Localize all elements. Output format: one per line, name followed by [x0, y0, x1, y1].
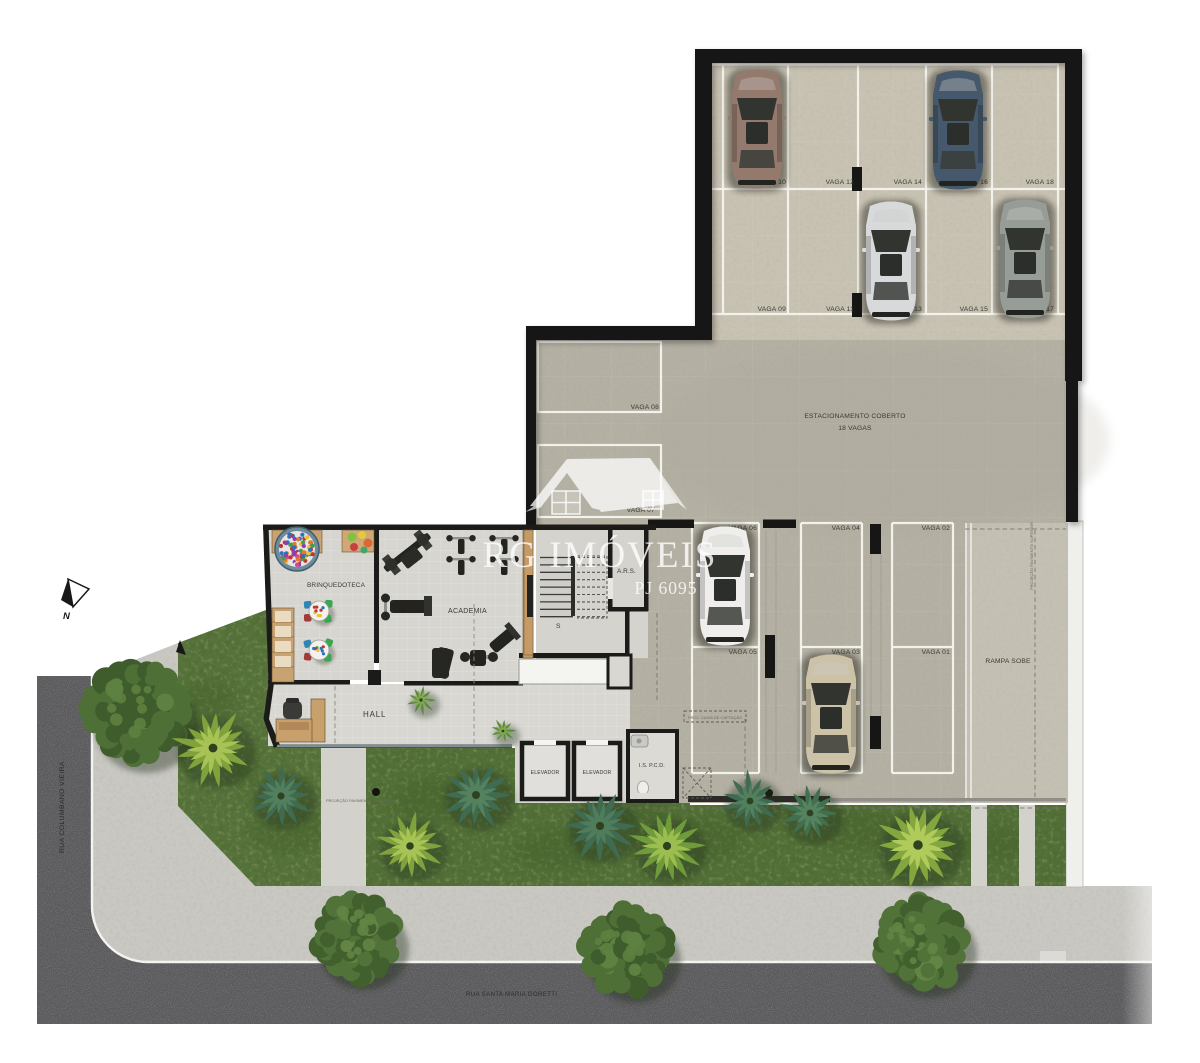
svg-text:RUA COLUMBANO VIEIRA: RUA COLUMBANO VIEIRA — [59, 761, 66, 853]
svg-text:BRINQUEDOTECA: BRINQUEDOTECA — [307, 582, 366, 589]
svg-text:VAGA 14: VAGA 14 — [894, 179, 922, 186]
svg-text:PROJEÇÃO PAVIMENTO SUPERIOR: PROJEÇÃO PAVIMENTO SUPERIOR — [1029, 522, 1034, 590]
svg-text:VAGA 11: VAGA 11 — [826, 306, 854, 313]
svg-text:VAGA 09: VAGA 09 — [758, 306, 786, 313]
svg-text:18 VAGAS: 18 VAGAS — [838, 425, 872, 432]
svg-text:PROJ. CAIXA DE CAPTAÇÃO: PROJ. CAIXA DE CAPTAÇÃO — [688, 715, 742, 720]
svg-text:N: N — [63, 611, 71, 622]
svg-text:ELEVADOR: ELEVADOR — [583, 770, 612, 776]
svg-text:I.S. P.C.D.: I.S. P.C.D. — [639, 763, 665, 769]
svg-text:VAGA 18: VAGA 18 — [1026, 179, 1054, 186]
svg-text:VAGA 08: VAGA 08 — [631, 404, 659, 411]
svg-text:PJ 6095: PJ 6095 — [635, 578, 698, 598]
svg-text:VAGA 02: VAGA 02 — [922, 525, 950, 532]
svg-text:ESTACIONAMENTO COBERTO: ESTACIONAMENTO COBERTO — [804, 413, 905, 420]
svg-text:RG IMÓVEIS: RG IMÓVEIS — [483, 534, 718, 576]
svg-text:VAGA 15: VAGA 15 — [960, 306, 988, 313]
svg-text:VAGA 01: VAGA 01 — [922, 649, 950, 656]
svg-text:RUA SANTA MARIA GORETTI: RUA SANTA MARIA GORETTI — [466, 991, 557, 998]
svg-text:ACADEMIA: ACADEMIA — [448, 608, 487, 615]
svg-text:VAGA 12: VAGA 12 — [826, 179, 854, 186]
svg-text:VAGA 04: VAGA 04 — [832, 525, 860, 532]
svg-text:HALL: HALL — [363, 710, 386, 719]
svg-text:PROJEÇÃO PAVIMENTO SUPERIOR: PROJEÇÃO PAVIMENTO SUPERIOR — [326, 798, 394, 803]
svg-text:VAGA 05: VAGA 05 — [729, 649, 757, 656]
svg-text:S: S — [556, 623, 561, 630]
svg-text:ELEVADOR: ELEVADOR — [531, 770, 560, 776]
svg-text:RAMPA SOBE: RAMPA SOBE — [985, 658, 1031, 665]
